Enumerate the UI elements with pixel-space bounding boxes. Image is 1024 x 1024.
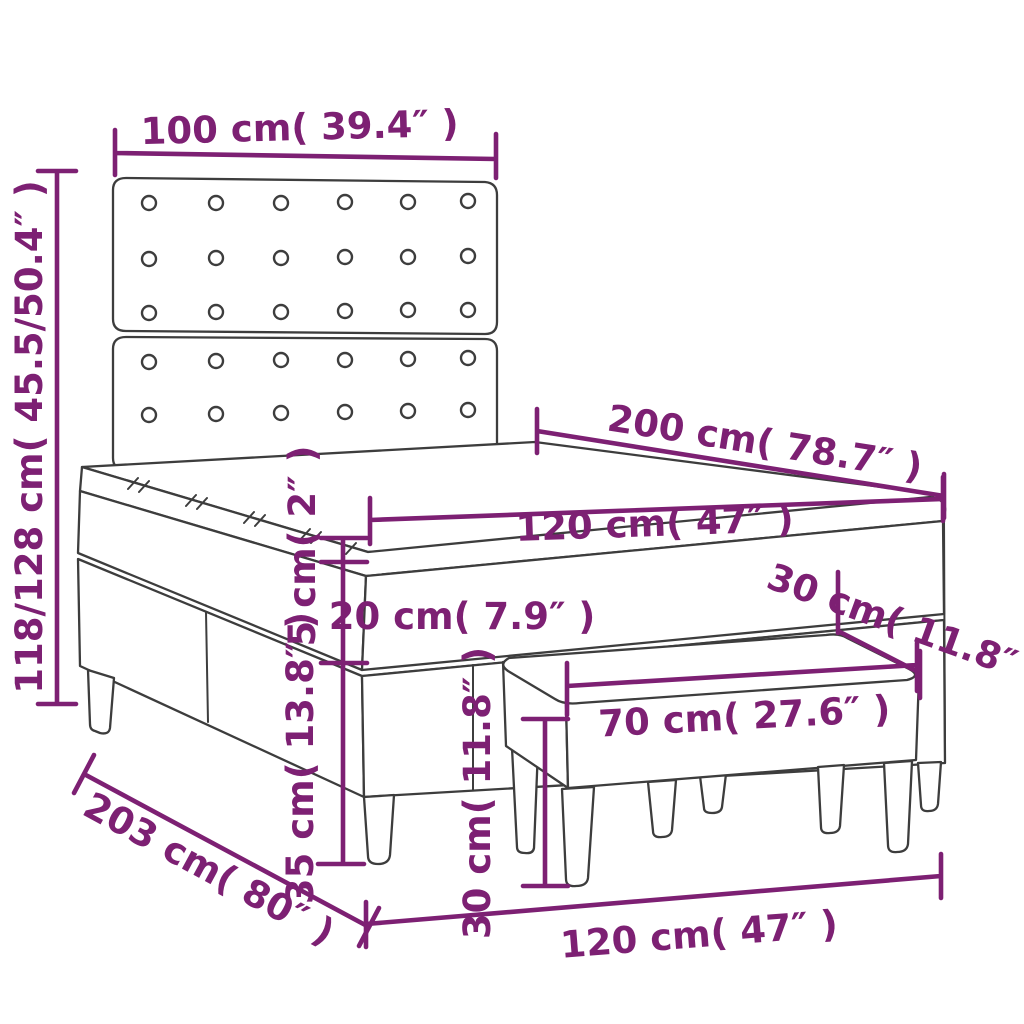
mattress-thickness-label: 20 cm( 7.9″ ) bbox=[329, 595, 596, 638]
bench-height-label: 30 cm( 11.8″ ) bbox=[456, 647, 499, 939]
dimension-bed-width: 120 cm( 47″ ) bbox=[366, 854, 941, 967]
total-height-label: 118/128 cm( 45.5/50.4″ ) bbox=[8, 180, 51, 694]
dimension-headboard-width: 100 cm( 39.4″ ) bbox=[115, 102, 496, 178]
bed-width-label: 120 cm( 47″ ) bbox=[559, 902, 840, 967]
base-height-label: 35 cm( 13.8″ ) bbox=[279, 612, 322, 904]
headboard bbox=[113, 178, 497, 472]
headboard-upper-panel bbox=[113, 178, 497, 334]
dimension-frame-length: 203 cm( 80″ ) bbox=[74, 755, 379, 954]
dimension-total-height: 118/128 cm( 45.5/50.4″ ) bbox=[8, 171, 76, 704]
diagram-canvas: 100 cm( 39.4″ ) 118/128 cm( 45.5/50.4″ )… bbox=[0, 0, 1024, 1024]
bed-dimension-diagram: 100 cm( 39.4″ ) 118/128 cm( 45.5/50.4″ )… bbox=[0, 0, 1024, 1024]
headboard-width-label: 100 cm( 39.4″ ) bbox=[140, 102, 459, 153]
